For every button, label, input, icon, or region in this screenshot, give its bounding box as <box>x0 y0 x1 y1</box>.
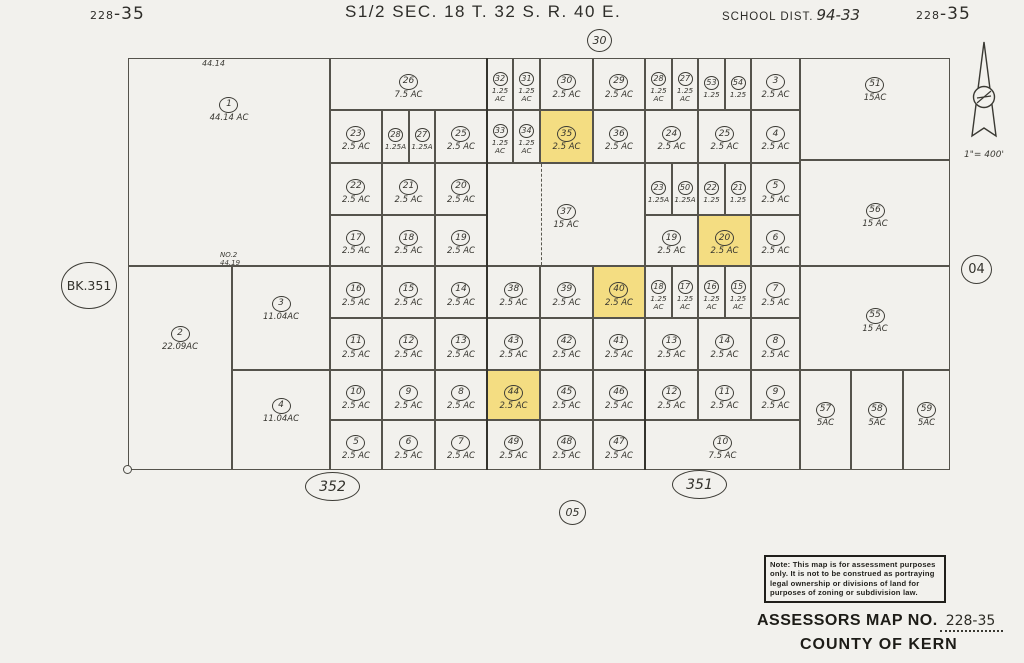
parcel-area: 2.5 AC <box>605 299 633 308</box>
parcel-area: 7.5 AC <box>395 91 423 100</box>
parcel-2: 222.09AC <box>128 266 232 470</box>
parcel-10: 107.5 AC <box>645 420 800 470</box>
parcel-number: 14 <box>715 334 734 350</box>
parcel-number: 28 <box>651 72 666 86</box>
parcel-number: 4 <box>272 398 291 414</box>
parcel-area: 2.5 AC <box>447 299 475 308</box>
parcel-4: 42.5 AC <box>751 110 800 163</box>
parcel-number: 15 <box>399 282 418 298</box>
parcel-27: 271.25A <box>409 110 435 163</box>
parcel-number: 59 <box>917 402 936 418</box>
parcel-37: 3715 AC <box>487 163 645 266</box>
parcel-42: 422.5 AC <box>540 318 593 370</box>
parcel-number: 44 <box>504 385 523 401</box>
parcel-number: 47 <box>609 435 628 451</box>
quarter-section-line-lower <box>644 370 646 470</box>
parcel-area: 2.5 AC <box>553 452 581 461</box>
parcel-area: 2.5 AC <box>395 402 423 411</box>
parcel-number: 25 <box>451 126 470 142</box>
parcel-number: 37 <box>557 204 576 220</box>
parcel-27: 271.25 AC <box>672 58 698 110</box>
parcel-number: 27 <box>678 72 693 86</box>
note-line: Note: This map is for assessment purpose… <box>770 560 940 569</box>
parcel-46: 462.5 AC <box>593 370 645 420</box>
parcel-area: 1.25 AC <box>677 295 693 310</box>
parcel-area: 2.5 AC <box>553 402 581 411</box>
parcel-number: 22 <box>704 181 719 195</box>
parcel-28: 281.25 AC <box>645 58 672 110</box>
parcel-number: 20 <box>451 179 470 195</box>
parcel-area: 1.25 AC <box>650 87 666 102</box>
parcel-11: 112.5 AC <box>698 370 751 420</box>
adjoining-page-marker-351: 351 <box>672 470 727 499</box>
note-line: legal ownership or divisions of land for <box>770 579 940 588</box>
parcel-18: 181.25 AC <box>645 266 672 318</box>
parcel-25: 252.5 AC <box>698 110 751 163</box>
parcel-59: 595AC <box>903 370 950 470</box>
county-label: COUNTY OF KERN <box>800 636 958 654</box>
parcel-area: 2.5 AC <box>762 91 790 100</box>
parcel-17: 171.25 AC <box>672 266 698 318</box>
parcel-number: 11 <box>346 334 365 350</box>
parcel-13: 132.5 AC <box>645 318 698 370</box>
parcel-45: 452.5 AC <box>540 370 593 420</box>
parcel-number: 5 <box>346 435 365 451</box>
parcel-number: 21 <box>731 181 746 195</box>
parcel-11: 112.5 AC <box>330 318 382 370</box>
parcel-number: 10 <box>346 385 365 401</box>
parcel-area: 2.5 AC <box>762 196 790 205</box>
parcel-number: 15 <box>731 280 746 294</box>
parcel-area: 1.25 <box>703 91 719 99</box>
parcel-48: 482.5 AC <box>540 420 593 470</box>
parcel-number: 20 <box>715 230 734 246</box>
parcel-number: 33 <box>493 124 508 138</box>
parcel-33: 331.25 AC <box>487 110 513 163</box>
parcel-area: 1.25 AC <box>492 87 508 102</box>
parcel-number: 12 <box>662 385 681 401</box>
parcel-area: 2.5 AC <box>342 452 370 461</box>
parcel-number: 28 <box>388 128 403 142</box>
parcel-number: 7 <box>766 282 785 298</box>
assessor-map-sheet: 228-35 S1/2 SEC. 18 T. 32 S. R. 40 E. SC… <box>0 0 1024 663</box>
parcel-8: 82.5 AC <box>435 370 487 420</box>
parcel-area: 2.5 AC <box>762 402 790 411</box>
parcel-15: 152.5 AC <box>382 266 435 318</box>
parcel-area: 1.25 <box>730 91 746 99</box>
parcel-area: 2.5 AC <box>500 299 528 308</box>
parcel-area: 2.5 AC <box>658 402 686 411</box>
parcel-number: 2 <box>171 326 190 342</box>
parcel-number: 53 <box>704 76 719 90</box>
parcel-23: 232.5 AC <box>330 110 382 163</box>
parcel-number: 9 <box>399 385 418 401</box>
parcel-3: 32.5 AC <box>751 58 800 110</box>
parcel-area: 15 AC <box>862 220 887 229</box>
parcel-area: 2.5 AC <box>553 299 581 308</box>
parcel-number: 29 <box>609 74 628 90</box>
parcel-number: 54 <box>731 76 746 90</box>
parcel-area: 2.5 AC <box>342 143 370 152</box>
parcel-area: 2.5 AC <box>395 247 423 256</box>
parcel-number: 42 <box>557 334 576 350</box>
parcel-number: 3 <box>766 74 785 90</box>
disclaimer-note-box: Note: This map is for assessment purpose… <box>764 555 946 603</box>
parcel-number: 1 <box>219 97 238 113</box>
parcel-34: 341.25 AC <box>513 110 540 163</box>
parcel-20: 202.5 AC <box>698 215 751 266</box>
parcel-area: 2.5 AC <box>711 402 739 411</box>
parcel-number: 45 <box>557 385 576 401</box>
parcel-area: 2.5 AC <box>342 196 370 205</box>
parcel-20: 202.5 AC <box>435 163 487 215</box>
parcel-number: 21 <box>399 179 418 195</box>
parcel-area: 2.5 AC <box>447 402 475 411</box>
parcel-area: 2.5 AC <box>447 143 475 152</box>
parcel-number: 18 <box>651 280 666 294</box>
parcel-area: 2.5 AC <box>658 351 686 360</box>
parcel-number: 12 <box>399 334 418 350</box>
note-line: only. It is not to be construed as portr… <box>770 569 940 578</box>
parcel-14: 142.5 AC <box>698 318 751 370</box>
parcel-area: 2.5 AC <box>605 143 633 152</box>
section-marker-right: 04 <box>961 255 992 284</box>
parcel-19: 192.5 AC <box>645 215 698 266</box>
parcel-16: 162.5 AC <box>330 266 382 318</box>
adjoining-book-marker: BK.351 <box>61 262 117 309</box>
parcel-area: 2.5 AC <box>447 196 475 205</box>
parcel-number: 35 <box>557 126 576 142</box>
road-dimension: 44.19 <box>220 260 240 268</box>
parcel-number: 39 <box>557 282 576 298</box>
parcel-55: 5515 AC <box>800 266 950 370</box>
parcel-18: 182.5 AC <box>382 215 435 266</box>
section-marker-top: 30 <box>587 29 612 52</box>
parcel-area: 2.5 AC <box>605 91 633 100</box>
parcel-9: 92.5 AC <box>751 370 800 420</box>
parcel-number: 18 <box>399 230 418 246</box>
parcel-22: 222.5 AC <box>330 163 382 215</box>
parcel-area: 11.04AC <box>263 415 299 424</box>
parcel-area: 2.5 AC <box>658 143 686 152</box>
parcel-area: 1.25 AC <box>492 139 508 154</box>
parcel-area: 1.25 AC <box>730 295 746 310</box>
parcel-number: 32 <box>493 72 508 86</box>
parcel-area: 1.25 AC <box>677 87 693 102</box>
quarter-section-line <box>486 58 488 470</box>
parcel-28: 281.25A <box>382 110 409 163</box>
parcel-35: 352.5 AC <box>540 110 593 163</box>
parcel-4: 411.04AC <box>232 370 330 470</box>
parcel-7: 72.5 AC <box>435 420 487 470</box>
parcel-number: 30 <box>557 74 576 90</box>
parcel-number: 36 <box>609 126 628 142</box>
parcel-25: 252.5 AC <box>435 110 487 163</box>
school-district: SCHOOL DIST.94-33 <box>722 6 860 25</box>
parcel-26: 267.5 AC <box>330 58 487 110</box>
parcel-9: 92.5 AC <box>382 370 435 420</box>
parcel-54: 541.25 <box>725 58 751 110</box>
parcel-number: 40 <box>609 282 628 298</box>
parcel-41: 412.5 AC <box>593 318 645 370</box>
scale-label: 1"= 400' <box>964 150 1004 160</box>
parcel-area: 1.25 <box>730 196 746 204</box>
parcel-area: 2.5 AC <box>500 351 528 360</box>
parcel-number: 16 <box>704 280 719 294</box>
parcel-10: 102.5 AC <box>330 370 382 420</box>
parcel-area: 2.5 AC <box>342 247 370 256</box>
parcel-number: 34 <box>519 124 534 138</box>
book-number: 228 <box>90 9 114 22</box>
parcel-12: 122.5 AC <box>382 318 435 370</box>
map-number-top-right: 228-35 <box>916 4 971 24</box>
parcel-area: 1.25 AC <box>703 295 719 310</box>
parcel-38: 382.5 AC <box>487 266 540 318</box>
parcel-number: 51 <box>865 77 884 93</box>
parcel-area: 2.5 AC <box>762 351 790 360</box>
assessors-map-value: 228-35 <box>940 613 1004 632</box>
parcel-area: 5AC <box>868 419 887 428</box>
parcel-number: 7 <box>451 435 470 451</box>
parcel-19: 192.5 AC <box>435 215 487 266</box>
parcel-24: 242.5 AC <box>645 110 698 163</box>
parcel-area: 1.25A <box>385 143 406 151</box>
parcel-area: 2.5 AC <box>711 351 739 360</box>
parcel-area: 2.5 AC <box>605 452 633 461</box>
parcel-7: 72.5 AC <box>751 266 800 318</box>
parcel-area: 1.25 AC <box>650 295 666 310</box>
parcel-number: 50 <box>678 181 693 195</box>
section-title: S1/2 SEC. 18 T. 32 S. R. 40 E. <box>345 2 621 22</box>
parcel-area: 2.5 AC <box>447 452 475 461</box>
parcel-number: 10 <box>713 435 732 451</box>
parcel-area: 2.5 AC <box>553 143 581 152</box>
parcel-area: 2.5 AC <box>762 299 790 308</box>
parcel-number: 16 <box>346 282 365 298</box>
parcel-area: 2.5 AC <box>447 351 475 360</box>
parcel-area: 15 AC <box>553 221 578 230</box>
parcel-15: 151.25 AC <box>725 266 751 318</box>
parcel-1: 144.14 AC <box>128 58 330 266</box>
parcel-area: 2.5 AC <box>500 452 528 461</box>
parcel-number: 24 <box>662 126 681 142</box>
parcel-number: 58 <box>868 402 887 418</box>
parcel-40: 402.5 AC <box>593 266 645 318</box>
adjoining-page-marker-352: 352 <box>305 472 360 501</box>
parcel-14: 142.5 AC <box>435 266 487 318</box>
parcel-area: 22.09AC <box>162 343 198 352</box>
parcel-5: 52.5 AC <box>751 163 800 215</box>
parcel-32: 321.25 AC <box>487 58 513 110</box>
parcel-number: 3 <box>272 296 291 312</box>
parcel-area: 2.5 AC <box>658 247 686 256</box>
parcel-number: 26 <box>399 74 418 90</box>
parcel-number: 9 <box>766 385 785 401</box>
parcel-number: 6 <box>399 435 418 451</box>
parcel-21: 212.5 AC <box>382 163 435 215</box>
parcel-number: 17 <box>678 280 693 294</box>
parcel-area: 2.5 AC <box>395 351 423 360</box>
parcel-number: 43 <box>504 334 523 350</box>
parcel-number: 4 <box>766 126 785 142</box>
parcel-22: 221.25 <box>698 163 725 215</box>
parcel-number: 17 <box>346 230 365 246</box>
parcel-number: 19 <box>662 230 681 246</box>
parcel-number: 23 <box>346 126 365 142</box>
parcel-17: 172.5 AC <box>330 215 382 266</box>
parcel-number: 8 <box>766 334 785 350</box>
school-district-label: SCHOOL DIST. <box>722 11 813 23</box>
parcel-number: 11 <box>715 385 734 401</box>
parcel-6: 62.5 AC <box>382 420 435 470</box>
parcel-number: 23 <box>651 181 666 195</box>
parcel-number: 48 <box>557 435 576 451</box>
parcel-56: 5615 AC <box>800 160 950 266</box>
parcel-area: 2.5 AC <box>500 402 528 411</box>
assessors-map-number: ASSESSORS MAP NO.228-35 <box>757 612 1003 630</box>
parcel-21: 211.25 <box>725 163 751 215</box>
parcel-16: 161.25 AC <box>698 266 725 318</box>
parcel-area: 2.5 AC <box>711 143 739 152</box>
school-district-value: 94-33 <box>816 6 860 24</box>
parcel-area: 2.5 AC <box>553 91 581 100</box>
section-marker-bottom: 05 <box>559 500 586 525</box>
parcel-6: 62.5 AC <box>751 215 800 266</box>
parcel-area: 2.5 AC <box>762 247 790 256</box>
parcel-number: 25 <box>715 126 734 142</box>
parcel-23: 231.25A <box>645 163 672 215</box>
parcel-number: 31 <box>519 72 534 86</box>
parcel-area: 2.5 AC <box>762 143 790 152</box>
parcel-area: 44.14 AC <box>210 114 249 123</box>
parcel-area: 2.5 AC <box>342 299 370 308</box>
parcel-47: 472.5 AC <box>593 420 645 470</box>
parcel-area: 2.5 AC <box>395 452 423 461</box>
parcel-area: 2.5 AC <box>395 299 423 308</box>
dashed-centerline <box>541 164 542 265</box>
parcel-number: 13 <box>662 334 681 350</box>
parcel-number: 41 <box>609 334 628 350</box>
parcel-number: 46 <box>609 385 628 401</box>
parcel-53: 531.25 <box>698 58 725 110</box>
parcel-area: 2.5 AC <box>711 247 739 256</box>
parcel-area: 15AC <box>864 94 887 103</box>
page-number: -35 <box>940 4 971 24</box>
parcel-31: 311.25 AC <box>513 58 540 110</box>
parcel-number: 27 <box>415 128 430 142</box>
parcel-8: 82.5 AC <box>751 318 800 370</box>
corner-survey-dot <box>123 465 132 474</box>
parcel-51: 5115AC <box>800 58 950 160</box>
parcel-29: 292.5 AC <box>593 58 645 110</box>
parcel-area: 5AC <box>816 419 835 428</box>
parcel-area: 2.5 AC <box>605 402 633 411</box>
parcel-number: 49 <box>504 435 523 451</box>
parcel-number: 22 <box>346 179 365 195</box>
parcel-number: 19 <box>451 230 470 246</box>
note-line: purposes of zoning or subdivision law. <box>770 588 940 597</box>
parcel-43: 432.5 AC <box>487 318 540 370</box>
parcel-number: 55 <box>866 308 885 324</box>
parcel-36: 362.5 AC <box>593 110 645 163</box>
assessors-map-label: ASSESSORS MAP NO. <box>757 612 938 629</box>
parcel-44: 442.5 AC <box>487 370 540 420</box>
parcel-50: 501.25A <box>672 163 698 215</box>
parcel-number: 5 <box>766 179 785 195</box>
road-label: NO.2 44.19 <box>220 252 240 267</box>
parcel-39: 392.5 AC <box>540 266 593 318</box>
parcel-49: 492.5 AC <box>487 420 540 470</box>
parcel-area: 1.25A <box>648 196 669 204</box>
parcel-5: 52.5 AC <box>330 420 382 470</box>
parcel-number: 13 <box>451 334 470 350</box>
page-number: -35 <box>114 4 145 24</box>
parcel-area: 1.25A <box>674 196 695 204</box>
parcel-area: 1.25A <box>411 143 432 151</box>
parcel-number: 14 <box>451 282 470 298</box>
parcel-number: 38 <box>504 282 523 298</box>
parcel-area: 2.5 AC <box>342 351 370 360</box>
parcel-area: 2.5 AC <box>342 402 370 411</box>
parcel-area: 15 AC <box>862 325 887 334</box>
parcel-number: 56 <box>866 203 885 219</box>
parcel-area: 2.5 AC <box>447 247 475 256</box>
parcel-area: 11.04AC <box>263 313 299 322</box>
parcel-area: 7.5 AC <box>709 452 737 461</box>
map-number-top-left: 228-35 <box>90 4 145 24</box>
top-dimension-label: 44.14 <box>202 59 225 68</box>
parcel-number: 57 <box>816 402 835 418</box>
parcel-number: 8 <box>451 385 470 401</box>
parcel-13: 132.5 AC <box>435 318 487 370</box>
parcel-57: 575AC <box>800 370 851 470</box>
parcel-area: 5AC <box>917 419 936 428</box>
parcel-area: 2.5 AC <box>605 351 633 360</box>
parcel-30: 302.5 AC <box>540 58 593 110</box>
parcel-area: 2.5 AC <box>395 196 423 205</box>
parcel-number: 6 <box>766 230 785 246</box>
parcel-3: 311.04AC <box>232 266 330 370</box>
north-arrow-icon <box>958 40 1010 148</box>
parcel-58: 585AC <box>851 370 903 470</box>
parcel-area: 1.25 <box>703 196 719 204</box>
parcel-area: 1.25 AC <box>518 87 534 102</box>
book-number: 228 <box>916 9 940 22</box>
parcel-area: 1.25 AC <box>518 139 534 154</box>
parcel-12: 122.5 AC <box>645 370 698 420</box>
parcel-area: 2.5 AC <box>553 351 581 360</box>
